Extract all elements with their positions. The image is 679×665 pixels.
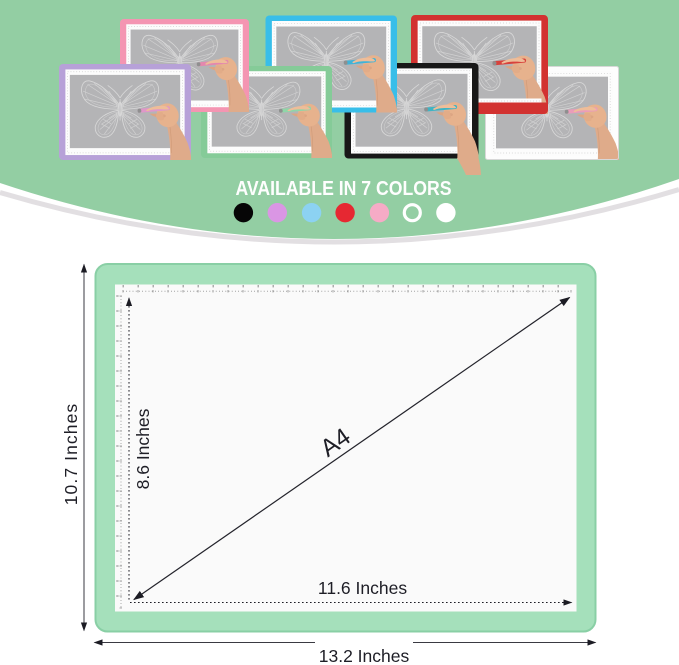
svg-text:11.6 Inches: 11.6 Inches (318, 578, 407, 598)
svg-text:AVAILABLE IN 7 COLORS: AVAILABLE IN 7 COLORS (236, 177, 452, 200)
svg-text:13.2 Inches: 13.2 Inches (319, 646, 410, 665)
svg-text:8.6 Inches: 8.6 Inches (133, 408, 153, 489)
svg-text:10.7 Inches: 10.7 Inches (61, 403, 81, 506)
